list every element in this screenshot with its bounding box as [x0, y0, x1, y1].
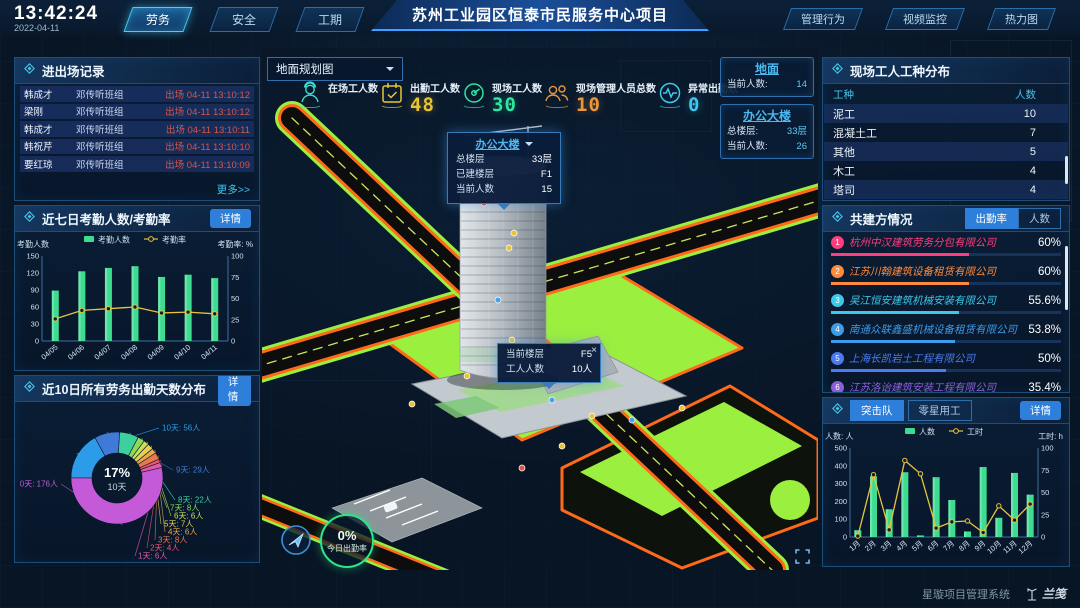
partner-value: 55.6%: [1028, 295, 1061, 307]
svg-text:400: 400: [834, 461, 847, 470]
pulse-icon: [656, 80, 684, 115]
type-row: 塔司4: [824, 180, 1068, 199]
partners-tab-0[interactable]: 出勤率: [965, 208, 1019, 229]
partner-value: 35.4%: [1028, 382, 1061, 394]
svg-text:200: 200: [834, 497, 847, 506]
progress-fill: [831, 253, 969, 256]
svg-text:04/08: 04/08: [119, 343, 139, 362]
progress-track: [831, 340, 1061, 343]
people-icon: [542, 80, 572, 115]
type-row: 混凝土工7: [824, 123, 1068, 142]
svg-text:10天: 56人: 10天: 56人: [162, 424, 200, 433]
svg-text:人数: 人: 人数: 人: [825, 431, 853, 441]
svg-text:150: 150: [26, 252, 39, 261]
svg-text:04/05: 04/05: [39, 343, 59, 362]
svg-text:25: 25: [231, 315, 239, 324]
stat-label: 出勤工人数: [410, 80, 460, 95]
progress-track: [831, 253, 1061, 256]
type-count: 10: [1024, 108, 1058, 120]
worker-name: 韩成才: [24, 122, 76, 136]
svg-text:50: 50: [231, 294, 239, 303]
svg-text:1天: 6人: 1天: 6人: [138, 552, 167, 561]
team-tab-1[interactable]: 零星用工: [908, 400, 972, 421]
nav-tab-right-0[interactable]: 管理行为: [783, 8, 863, 30]
today-attendance-label: 今日出勤率: [327, 543, 367, 554]
svg-text:75: 75: [231, 273, 239, 282]
floor-box-title[interactable]: 办公大楼: [727, 107, 807, 124]
diamond-icon: [23, 62, 36, 80]
partner-name: 江苏洛诒建筑安装工程有限公司: [849, 380, 1023, 393]
partner-name: 杭州中汉建筑劳务分包有限公司: [849, 235, 1033, 250]
svg-text:04/11: 04/11: [199, 343, 219, 362]
svg-text:工时: h: 工时: h: [1038, 431, 1063, 441]
svg-text:100: 100: [834, 515, 847, 524]
svg-text:60: 60: [31, 303, 39, 312]
partner-row: 2 江苏川翰建筑设备租赁有限公司 60%: [831, 264, 1061, 290]
entry-exit-row: 梁刚 邓传听班组 出场 04-11 13:10:12: [20, 104, 254, 120]
team-chart: 人数: 人工时: h人数工时01002003004005000255075100…: [823, 424, 1065, 562]
worker-name: 要红琼: [24, 157, 76, 171]
floor-box-1[interactable]: 办公大楼 总楼层:33层当前人数:26: [720, 104, 814, 159]
site-stat-3: 现场管理人员总数 10: [542, 80, 656, 115]
svg-text:30: 30: [31, 320, 39, 329]
svg-text:100: 100: [231, 252, 244, 261]
entry-exit-row: 要红琼 邓传听班组 出场 04-11 13:10:09: [20, 156, 254, 172]
crane-icon: [1026, 587, 1038, 601]
svg-text:考勤率: %: 考勤率: %: [217, 239, 253, 249]
svg-text:1月: 1月: [847, 539, 862, 553]
type-count: 4: [1030, 184, 1058, 196]
entry-exit-row: 韩祝芹 邓传听班组 出场 04-11 13:10:10: [20, 139, 254, 155]
partner-name: 南通众联鑫盛机械设备租赁有限公司: [849, 322, 1023, 337]
floor-box-0[interactable]: 地面 当前人数:14: [720, 57, 814, 97]
partner-row: 6 江苏洛诒建筑安装工程有限公司 35.4%: [831, 380, 1061, 393]
exit-event: 出场 04-11 13:10:09: [164, 157, 250, 171]
svg-text:0: 0: [1041, 533, 1045, 542]
work-group: 邓传听班组: [76, 139, 164, 153]
nav-tabs-right: 管理行为视频监控热力图: [787, 8, 1052, 30]
site-stat-1: 出勤工人数 48: [378, 80, 460, 115]
attendance-7day-title: 近七日考勤人数/考勤率: [42, 209, 170, 228]
distribution-donut: 10天: 56人9天: 29人8天: 22人7天: 8人6天: 6人5天: 7人…: [15, 402, 257, 560]
svg-text:8月: 8月: [957, 539, 972, 553]
svg-text:500: 500: [834, 444, 847, 453]
progress-track: [831, 282, 1061, 285]
distribution-title: 近10日所有劳务出勤天数分布: [42, 379, 206, 398]
worker-name: 韩成才: [24, 87, 76, 101]
type-name: 泥工: [833, 106, 855, 122]
type-row: 泥工10: [824, 104, 1068, 123]
svg-text:6月: 6月: [926, 539, 941, 553]
entry-exit-row: 韩成才 邓传听班组 出场 04-11 13:10:11: [20, 121, 254, 137]
close-icon[interactable]: ×: [591, 345, 597, 356]
map-view-selector[interactable]: 地面规划图: [267, 57, 403, 81]
stat-label: 在场工人数: [328, 80, 378, 95]
nav-tab-right-2[interactable]: 热力图: [987, 8, 1056, 30]
entry-exit-row: 韩成才 邓传听班组 出场 04-11 13:10:12: [20, 86, 254, 102]
svg-text:17%: 17%: [104, 465, 130, 480]
diamond-icon: [831, 402, 844, 420]
stat-label: 现场工人数: [492, 80, 542, 95]
svg-text:25: 25: [1041, 510, 1049, 519]
svg-text:300: 300: [834, 479, 847, 488]
type-row: 木工4: [824, 161, 1068, 180]
partners-tab-1[interactable]: 人数: [1018, 208, 1061, 229]
progress-track: [831, 311, 1061, 314]
map-view-label: 地面规划图: [276, 61, 334, 77]
svg-text:10天: 10天: [107, 482, 126, 492]
footer: 星璇项目管理系统 兰笺: [922, 585, 1066, 602]
site-stats-row: 在场工人数 出勤工人数 48 现场工人数 30 现场管理人员总数 10 异常出勤…: [296, 80, 714, 115]
types-header-row: 工种人数: [824, 84, 1068, 104]
nav-tab-2[interactable]: 工期: [295, 7, 364, 32]
svg-text:0: 0: [231, 337, 235, 346]
type-count: 4: [1030, 165, 1058, 177]
clock: 13:42:24 2022-04-11: [14, 4, 98, 33]
tooltip-row: 当前人数15: [456, 182, 552, 197]
worker-name: 韩祝芹: [24, 139, 76, 153]
partner-row: 1 杭州中汉建筑劳务分包有限公司 60%: [831, 235, 1061, 261]
entry-exit-title: 进出场记录: [42, 61, 105, 80]
distribution-detail-button[interactable]: 详情: [218, 375, 251, 406]
floor-selector-boxes: 地面 当前人数:14 办公大楼 总楼层:33层当前人数:26: [720, 57, 814, 166]
worker-types-panel: 现场工人工种分布 工种人数泥工10混凝土工7其他5木工4塔司4: [822, 57, 1070, 201]
today-attendance-value: 0%: [338, 528, 357, 543]
brand-logo: 兰笺: [1026, 585, 1066, 602]
today-attendance-ring: 0% 今日出勤率: [320, 514, 374, 568]
tooltip-row: 已建楼层F1: [456, 167, 552, 182]
type-name: 木工: [833, 163, 855, 179]
svg-text:04/06: 04/06: [66, 343, 86, 362]
svg-text:11月: 11月: [1001, 539, 1019, 556]
stat-value: 10: [576, 96, 656, 115]
attendance-7day-panel: 近七日考勤人数/考勤率 详情 考勤人数考勤率: %考勤人数考勤率03060901…: [14, 205, 260, 371]
nav-tab-1[interactable]: 安全: [209, 7, 278, 32]
tooltip-row: 工人人数10人: [506, 362, 592, 377]
svg-text:人数: 人数: [919, 427, 935, 437]
attendance-chart: 考勤人数考勤率: %考勤人数考勤率03060901201500255075100…: [15, 232, 255, 366]
scrollbar-thumb[interactable]: [1065, 246, 1068, 310]
diamond-icon: [23, 210, 36, 228]
type-count: 5: [1030, 146, 1058, 158]
svg-text:0天: 176人: 0天: 176人: [20, 480, 58, 489]
rank-badge: 5: [831, 352, 844, 365]
floor-tooltip[interactable]: × 当前楼层F5工人人数10人: [497, 343, 601, 383]
partner-row: 4 南通众联鑫盛机械设备租赁有限公司 53.8%: [831, 322, 1061, 348]
partner-row: 3 吴江恒安建筑机械安装有限公司 55.6%: [831, 293, 1061, 319]
chevron-down-icon: [386, 67, 394, 75]
distribution-panel: 近10日所有劳务出勤天数分布 详情 10天: 56人9天: 29人8天: 22人…: [14, 375, 260, 563]
partner-value: 60%: [1038, 237, 1061, 249]
more-link[interactable]: 更多>>: [217, 182, 250, 197]
rank-badge: 4: [831, 323, 844, 336]
nav-tab-right-1[interactable]: 视频监控: [885, 8, 965, 30]
progress-fill: [831, 311, 959, 314]
svg-text:考勤人数: 考勤人数: [98, 235, 130, 245]
svg-text:4月: 4月: [894, 539, 909, 553]
stat-value: 48: [410, 96, 460, 115]
entry-exit-panel: 进出场记录 韩成才 邓传听班组 出场 04-11 13:10:12 梁刚 邓传听…: [14, 57, 260, 201]
partner-row: 5 上海长凯岩土工程有限公司 50%: [831, 351, 1061, 377]
svg-text:0: 0: [843, 533, 847, 542]
work-group: 邓传听班组: [76, 104, 164, 118]
page-title: 苏州工业园区恒泰市民服务中心项目: [371, 0, 709, 31]
work-group: 邓传听班组: [76, 157, 164, 171]
progress-fill: [831, 369, 946, 372]
svg-text:7月: 7月: [941, 539, 956, 553]
type-name: 其他: [833, 144, 855, 160]
team-tab-0[interactable]: 突击队: [850, 400, 904, 421]
top-header: 13:42:24 2022-04-11 劳务安全工期 苏州工业园区恒泰市民服务中…: [0, 0, 1080, 38]
progress-track: [831, 369, 1061, 372]
floor-box-title[interactable]: 地面: [727, 60, 807, 77]
date-display: 2022-04-11: [14, 24, 98, 33]
diamond-icon: [831, 210, 844, 228]
stat-value: 30: [492, 96, 542, 115]
tooltip-row: 总楼层33层: [456, 152, 552, 167]
gauge-icon: [460, 80, 488, 115]
progress-fill: [831, 282, 969, 285]
compass-icon[interactable]: [280, 524, 312, 561]
system-name: 星璇项目管理系统: [922, 586, 1010, 602]
partners-title: 共建方情况: [850, 209, 913, 228]
worker-types-title: 现场工人工种分布: [850, 61, 950, 80]
calendar-icon: [378, 80, 406, 115]
rank-badge: 1: [831, 236, 844, 249]
exit-event: 出场 04-11 13:10:12: [164, 87, 250, 101]
floor-box-row: 当前人数:26: [727, 140, 807, 154]
partner-name: 江苏川翰建筑设备租赁有限公司: [849, 264, 1033, 279]
svg-text:工时: 工时: [967, 427, 983, 437]
team-panel: 突击队零星用工 详情 人数: 人工时: h人数工时010020030040050…: [822, 397, 1070, 567]
type-name: 混凝土工: [833, 125, 877, 141]
nav-tabs-left: 劳务安全工期: [128, 7, 360, 32]
svg-text:考勤人数: 考勤人数: [17, 239, 49, 249]
svg-text:75: 75: [1041, 466, 1049, 475]
floor-box-row: 总楼层:33层: [727, 125, 807, 139]
svg-text:50: 50: [1041, 488, 1049, 497]
type-count: 7: [1030, 127, 1058, 139]
type-row: 其他5: [824, 142, 1068, 161]
svg-text:04/10: 04/10: [172, 343, 192, 362]
nav-tab-0[interactable]: 劳务: [123, 7, 192, 32]
attendance-detail-button[interactable]: 详情: [210, 209, 251, 228]
stat-label: 现场管理人员总数: [576, 80, 656, 95]
svg-text:0: 0: [35, 337, 39, 346]
type-name: 塔司: [833, 182, 855, 198]
partner-value: 53.8%: [1028, 324, 1061, 336]
svg-text:考勤率: 考勤率: [162, 235, 186, 245]
svg-text:9月: 9月: [973, 539, 988, 553]
site-stat-0: 在场工人数: [296, 80, 378, 115]
partner-name: 吴江恒安建筑机械安装有限公司: [849, 293, 1023, 308]
building-tooltip-title: 办公大楼: [476, 136, 520, 152]
progress-fill: [831, 340, 955, 343]
exit-event: 出场 04-11 13:10:11: [164, 122, 250, 136]
diamond-icon: [23, 380, 36, 398]
svg-text:9天: 29人: 9天: 29人: [176, 466, 210, 475]
worker-icon: [296, 80, 324, 115]
svg-text:120: 120: [26, 269, 39, 278]
partner-value: 50%: [1038, 353, 1061, 365]
svg-text:5月: 5月: [910, 539, 925, 553]
svg-text:2月: 2月: [863, 539, 878, 553]
scrollbar-thumb[interactable]: [1065, 156, 1068, 184]
team-detail-button[interactable]: 详情: [1020, 401, 1061, 420]
rank-badge: 6: [831, 381, 844, 393]
work-group: 邓传听班组: [76, 87, 164, 101]
worker-name: 梁刚: [24, 104, 76, 118]
chevron-down-icon[interactable]: [525, 142, 533, 150]
partner-name: 上海长凯岩土工程有限公司: [849, 351, 1033, 366]
brand-name: 兰笺: [1042, 585, 1066, 602]
rank-badge: 2: [831, 265, 844, 278]
diamond-icon: [831, 62, 844, 80]
svg-text:3月: 3月: [879, 539, 894, 553]
rank-badge: 3: [831, 294, 844, 307]
floor-box-row: 当前人数:14: [727, 78, 807, 92]
svg-text:90: 90: [31, 286, 39, 295]
partner-value: 60%: [1038, 266, 1061, 278]
svg-text:04/09: 04/09: [146, 343, 166, 362]
partners-panel: 共建方情况 出勤率人数 1 杭州中汉建筑劳务分包有限公司 60% 2 江苏川翰建…: [822, 205, 1070, 393]
work-group: 邓传听班组: [76, 122, 164, 136]
building-tooltip[interactable]: 办公大楼 总楼层33层已建楼层F1当前人数15: [447, 132, 561, 204]
svg-text:100: 100: [1041, 444, 1054, 453]
svg-text:12月: 12月: [1017, 539, 1035, 556]
site-stat-2: 现场工人数 30: [460, 80, 542, 115]
svg-text:04/07: 04/07: [93, 343, 113, 362]
time-display: 13:42:24: [14, 4, 98, 24]
fullscreen-icon[interactable]: [795, 549, 810, 569]
exit-event: 出场 04-11 13:10:10: [164, 139, 250, 153]
svg-text:10月: 10月: [985, 539, 1003, 556]
tooltip-row: 当前楼层F5: [506, 347, 592, 362]
exit-event: 出场 04-11 13:10:12: [164, 104, 250, 118]
